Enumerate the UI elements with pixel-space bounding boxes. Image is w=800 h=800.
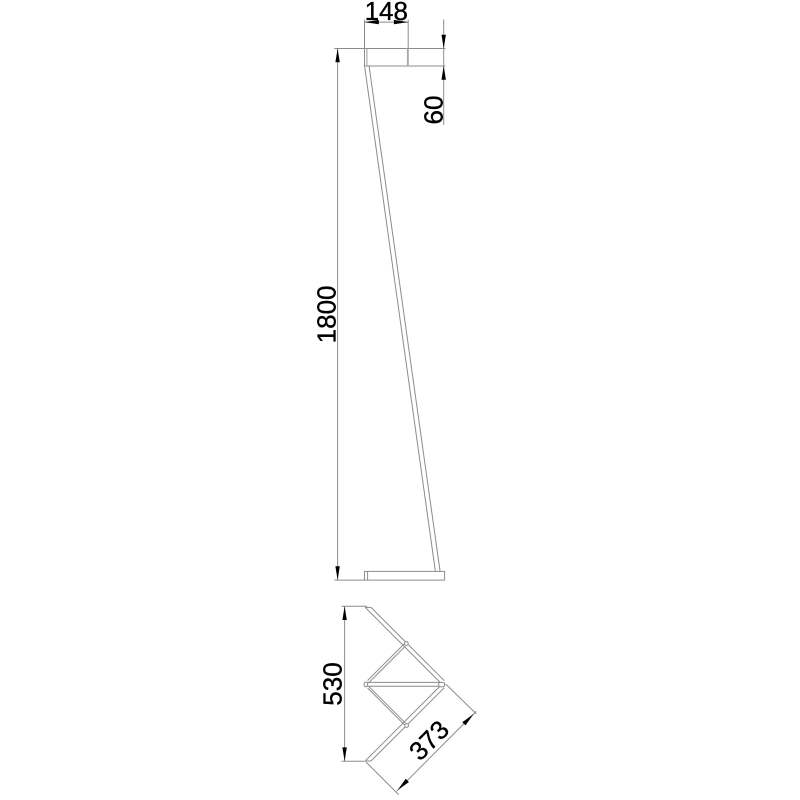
svg-text:148: 148 [365, 0, 408, 26]
svg-text:530: 530 [317, 662, 347, 705]
svg-text:1800: 1800 [312, 285, 342, 343]
svg-text:60: 60 [419, 96, 449, 125]
